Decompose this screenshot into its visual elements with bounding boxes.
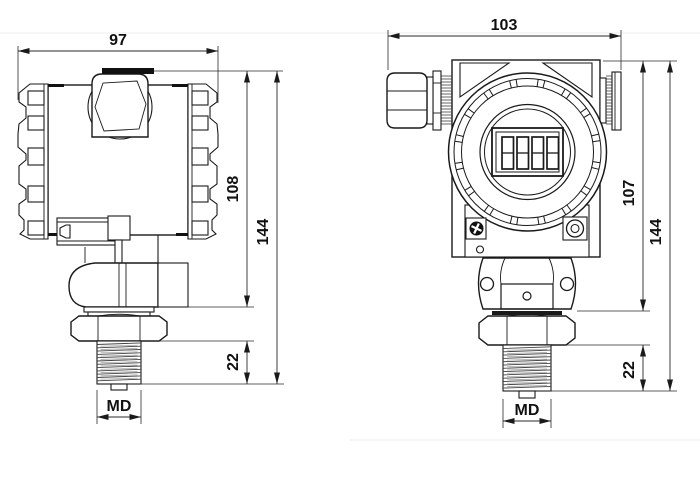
dim-right-body-height: 107 [621, 180, 638, 207]
dim-left-body-height: 108 [225, 176, 242, 203]
dim-right-total-height: 144 [648, 219, 665, 246]
dim-left-total-height: 144 [255, 219, 272, 246]
hex-nut-side [71, 314, 167, 343]
sensor-neck [69, 263, 188, 307]
dim-left-thread-size: MD [107, 398, 132, 415]
drawing-canvas: 97 108 22 144 MD [0, 0, 700, 478]
blind-plug [600, 72, 621, 130]
washer [84, 307, 154, 312]
dim-right-thread-length: 22 [621, 361, 638, 379]
dim-right-width: 103 [491, 17, 518, 34]
top-hex-plug [88, 68, 154, 139]
left-view-drawing: 97 108 22 144 MD [18, 32, 284, 424]
right-view-drawing: 103 107 22 144 MD [387, 17, 677, 428]
cable-gland [387, 71, 452, 130]
mounting-boss [567, 220, 584, 237]
process-thread [97, 341, 141, 390]
hex-nut-front [479, 314, 575, 347]
plug-cap-strip [102, 68, 154, 74]
connector-bolt [115, 240, 122, 263]
technical-drawing: 97 108 22 144 MD [0, 0, 700, 478]
lcd-display [492, 128, 563, 176]
sensor-barrel [479, 258, 576, 315]
thread-tip [111, 384, 127, 390]
dim-right-thread-size: MD [515, 402, 540, 419]
dim-left-width: 97 [109, 32, 127, 49]
thread-tip [519, 391, 535, 398]
dim-left-thread-length: 22 [225, 353, 242, 371]
plate-hole [477, 246, 484, 253]
process-thread-front [503, 345, 551, 398]
terminal-block [57, 216, 130, 263]
conduit-block [108, 216, 130, 240]
